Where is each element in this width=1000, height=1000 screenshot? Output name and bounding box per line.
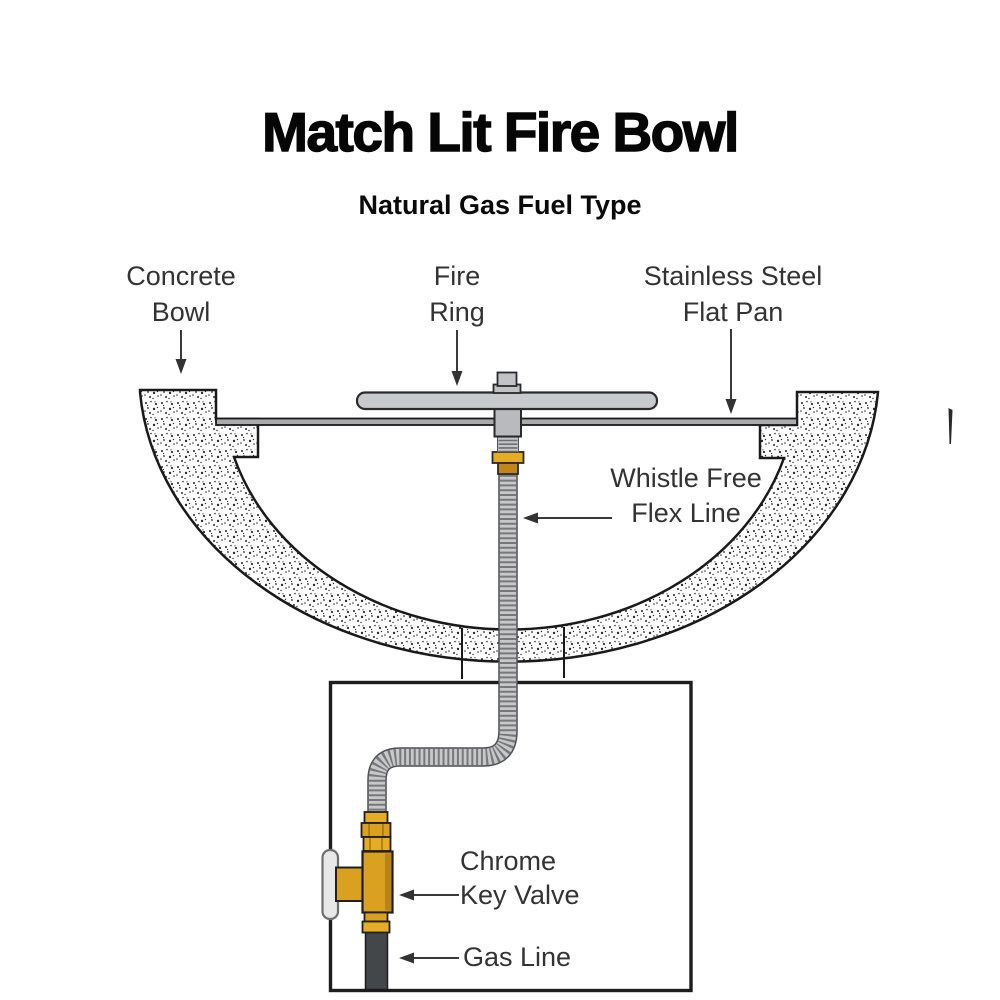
flat-pan-arrowhead [726, 399, 737, 414]
fire-ring-arrowhead [452, 371, 463, 386]
threaded-nipple [498, 435, 519, 452]
callout-gas-line: Gas Line [463, 940, 663, 974]
pan-brass-fitting-upper [493, 452, 524, 463]
callout-line: Key Valve [460, 878, 680, 912]
callout-line: Flat Pan [611, 294, 855, 330]
concrete-bowl-arrowhead [176, 359, 187, 374]
valve-fitting-bottom-band [365, 913, 388, 922]
valve-fitting-bottom-hex [363, 922, 390, 933]
gas-line-pipe [366, 932, 388, 990]
callout-line: Chrome [460, 844, 680, 878]
valve-fitting-top-hex [362, 823, 391, 837]
page-title: Match Lit Fire Bowl [0, 100, 1000, 164]
page-subtitle: Natural Gas Fuel Type [0, 190, 1000, 221]
callout-whistle-free-flex-line: Whistle Free Flex Line [575, 461, 797, 531]
valve-fitting-top-band [365, 812, 388, 823]
burner-bolt-cap [498, 373, 517, 387]
stray-ink-mark [949, 408, 953, 444]
valve-fitting-coupling [364, 837, 391, 851]
callout-line: Gas Line [463, 940, 663, 974]
callout-line: Whistle Free [575, 461, 797, 496]
callout-concrete-bowl: Concrete Bowl [81, 258, 281, 330]
flex-line-arrowhead [523, 513, 538, 524]
callout-line: Bowl [81, 294, 281, 330]
match-lit-fire-bowl-page: Match Lit Fire Bowl Natural Gas Fuel Typ… [0, 0, 1000, 1000]
callout-line: Ring [357, 294, 557, 330]
callout-fire-ring: Fire Ring [357, 258, 557, 330]
callout-chrome-key-valve: Chrome Key Valve [460, 844, 680, 912]
callout-stainless-steel-flat-pan: Stainless Steel Flat Pan [611, 258, 855, 330]
pan-brass-fitting-lower [498, 463, 518, 474]
fire-ring-shape [357, 393, 657, 410]
burner-nut [495, 409, 522, 437]
callout-line: Fire [357, 258, 557, 294]
key-valve-body-shading [385, 854, 391, 911]
callout-line: Flex Line [575, 496, 797, 531]
callout-line: Stainless Steel [611, 258, 855, 294]
callout-line: Concrete [81, 258, 281, 294]
